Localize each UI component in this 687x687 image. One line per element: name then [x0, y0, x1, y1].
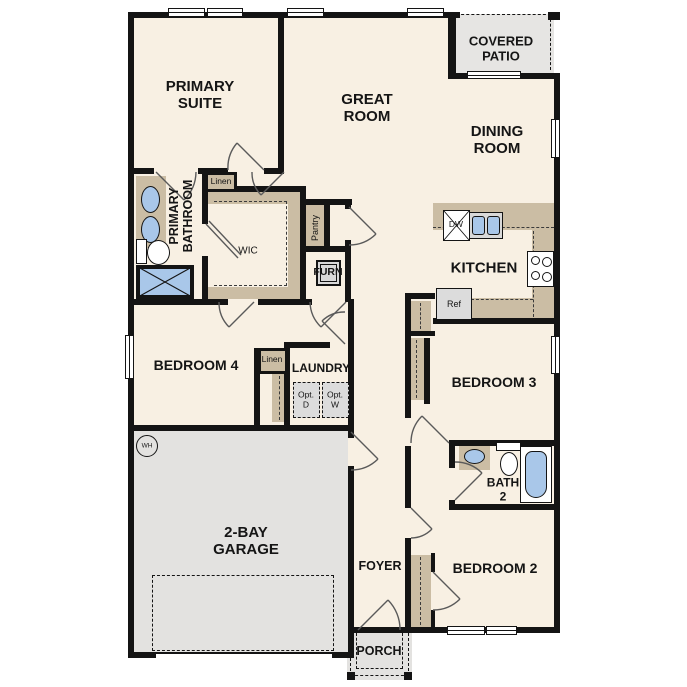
window: [207, 8, 243, 17]
window-mullion: [408, 12, 443, 13]
patio-dashed-edge: [456, 14, 551, 70]
closet-rod-dashed: [416, 340, 417, 398]
burner-icon: [542, 272, 552, 282]
wall-segment: [345, 199, 351, 209]
linen-closet-box-2: [258, 348, 288, 374]
closet-rod-dashed: [279, 376, 280, 420]
window: [407, 8, 444, 17]
window: [125, 335, 134, 379]
wall-segment: [290, 342, 330, 348]
wall-segment: [548, 12, 560, 20]
window-mullion: [208, 12, 242, 13]
wic-shelf-right: [288, 204, 300, 299]
wall-segment: [202, 256, 208, 305]
water-heater-icon: [136, 435, 158, 457]
window: [287, 8, 324, 17]
counter-dashed-3: [471, 299, 533, 300]
toilet-bowl-icon: [147, 240, 170, 265]
wall-segment: [347, 672, 355, 680]
shower-icon: [136, 265, 194, 299]
burner-icon: [531, 256, 540, 265]
optional-washer-icon: [322, 382, 349, 418]
window-mullion: [129, 336, 130, 378]
wall-segment: [424, 338, 430, 404]
garage-door-dashed: [152, 575, 334, 651]
window-mullion: [468, 75, 520, 76]
wall-segment: [404, 672, 412, 680]
pantry-shelf: [306, 205, 324, 252]
wall-segment: [405, 446, 411, 508]
window: [447, 626, 485, 635]
burner-icon: [542, 257, 552, 267]
dishwasher-icon: [443, 210, 470, 241]
bathtub-inner: [525, 451, 547, 498]
window-mullion: [555, 337, 556, 373]
wall-segment: [405, 538, 411, 627]
wall-segment: [448, 12, 456, 73]
window-mullion: [288, 12, 323, 13]
linen-closet-box: [205, 172, 237, 192]
wall-segment: [134, 425, 354, 431]
bedroom3-closet-strip: [410, 338, 424, 400]
garage-door-line: [152, 652, 334, 654]
window: [551, 119, 560, 158]
window: [467, 71, 521, 79]
wall-segment: [449, 446, 455, 468]
window-mullion: [555, 120, 556, 157]
wall-segment: [324, 205, 330, 246]
wall-segment: [345, 240, 351, 302]
window-mullion: [487, 630, 516, 631]
wall-segment: [134, 299, 228, 305]
refrigerator-icon: [436, 288, 472, 320]
bath2-sink-icon: [464, 449, 485, 464]
wall-segment: [348, 466, 354, 658]
wall-segment: [405, 293, 411, 418]
wall-segment: [405, 331, 435, 336]
wall-segment: [258, 299, 312, 305]
toilet-tank-icon: [496, 442, 521, 451]
wall-segment: [431, 553, 435, 572]
wall-segment: [431, 610, 435, 627]
sink-bowl-icon: [487, 216, 500, 235]
wic-shelf-dashed: [214, 201, 287, 286]
wall-segment: [449, 504, 554, 510]
sink-bowl-icon: [472, 216, 485, 235]
window: [551, 336, 560, 374]
wall-segment: [134, 168, 154, 174]
cooktop-icon: [527, 251, 554, 287]
closet-rod-dashed: [420, 303, 421, 329]
wall-segment: [237, 186, 306, 192]
hall-closet-strip: [411, 301, 431, 331]
floor-plan: COVERED PATIOPRIMARY SUITEGREAT ROOMDINI…: [0, 0, 687, 687]
vanity-sink-icon: [141, 186, 160, 213]
toilet-tank-icon: [136, 239, 147, 264]
wall-segment: [264, 168, 284, 174]
burner-icon: [531, 271, 540, 280]
furnace-inner: [320, 264, 337, 282]
bedroom2-closet-strip: [411, 555, 431, 627]
window: [168, 8, 205, 17]
wall-segment: [405, 293, 435, 299]
wall-segment: [348, 425, 354, 438]
optional-dryer-icon: [293, 382, 320, 418]
wall-segment: [278, 18, 284, 174]
kitchen-counter-bottom: [471, 298, 554, 320]
window: [486, 626, 517, 635]
wic-shelf-bottom: [206, 287, 300, 299]
closet-rod-dashed: [420, 557, 421, 625]
toilet-bowl-icon: [500, 452, 518, 476]
wall-segment: [202, 192, 208, 224]
porch-dashed-inner: [356, 633, 403, 669]
window-mullion: [448, 630, 484, 631]
window-mullion: [169, 12, 204, 13]
